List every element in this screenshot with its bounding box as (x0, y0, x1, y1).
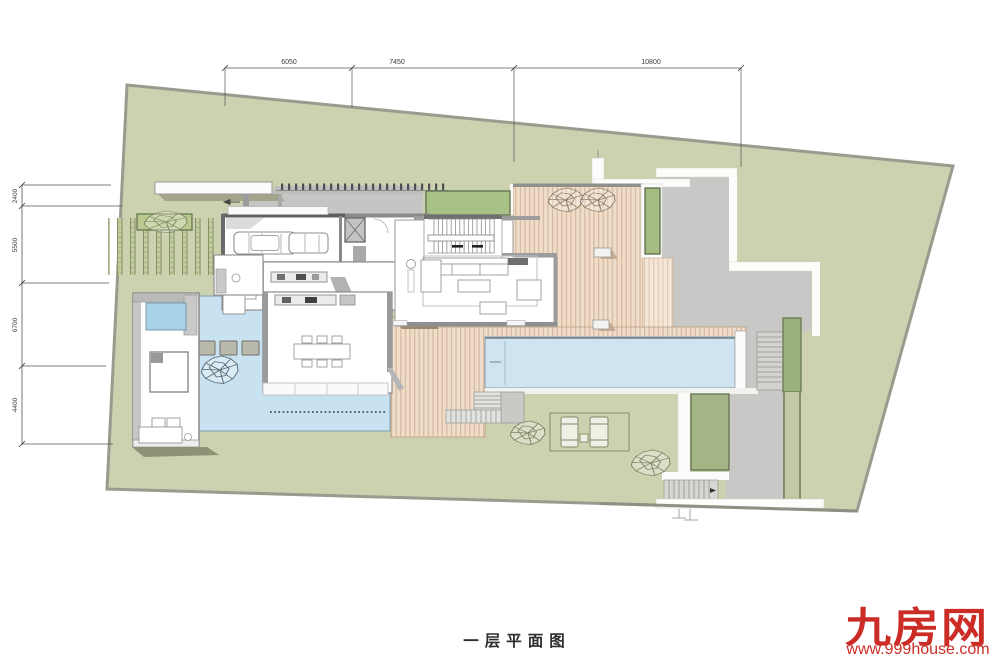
svg-text:5500: 5500 (12, 237, 19, 252)
svg-text:6700: 6700 (12, 317, 19, 332)
svg-text:10800: 10800 (641, 59, 661, 66)
svg-text:4400: 4400 (12, 397, 19, 412)
svg-text:6050: 6050 (281, 59, 297, 66)
svg-text:7450: 7450 (389, 59, 405, 66)
svg-text:2400: 2400 (12, 188, 19, 203)
